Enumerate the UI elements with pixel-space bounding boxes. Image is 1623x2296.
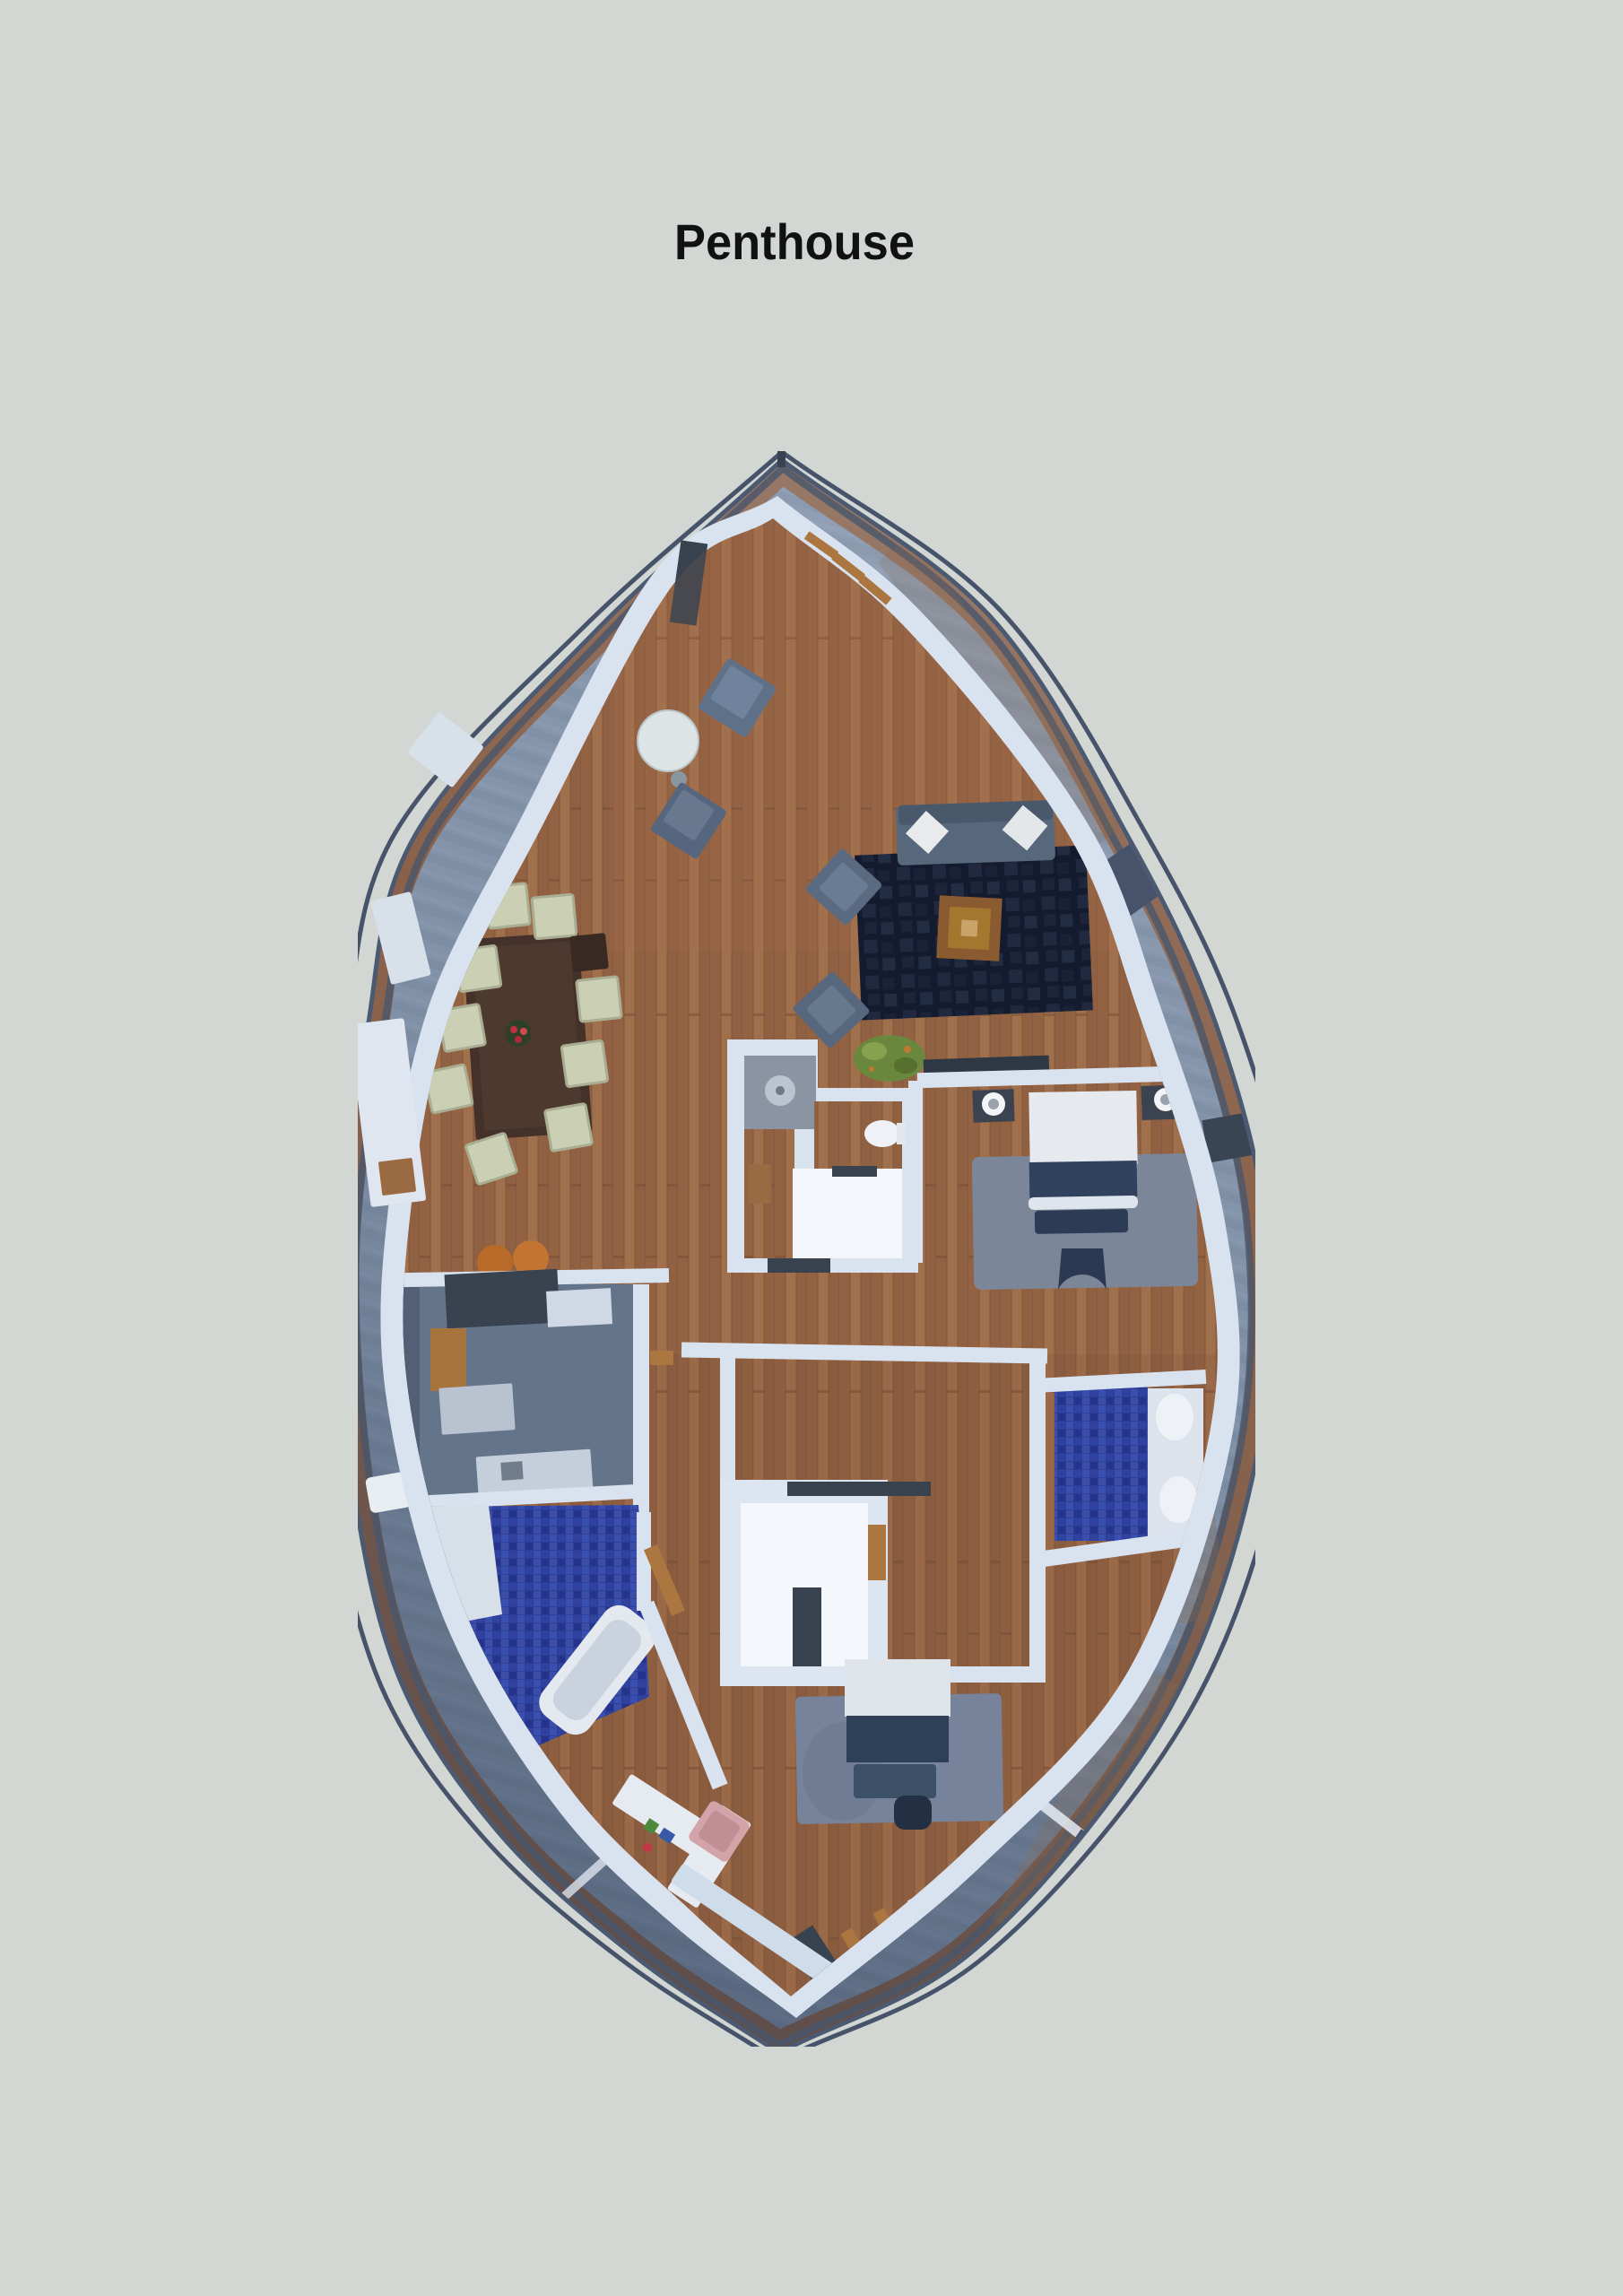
svg-text:Penthouse: Penthouse — [674, 213, 915, 270]
